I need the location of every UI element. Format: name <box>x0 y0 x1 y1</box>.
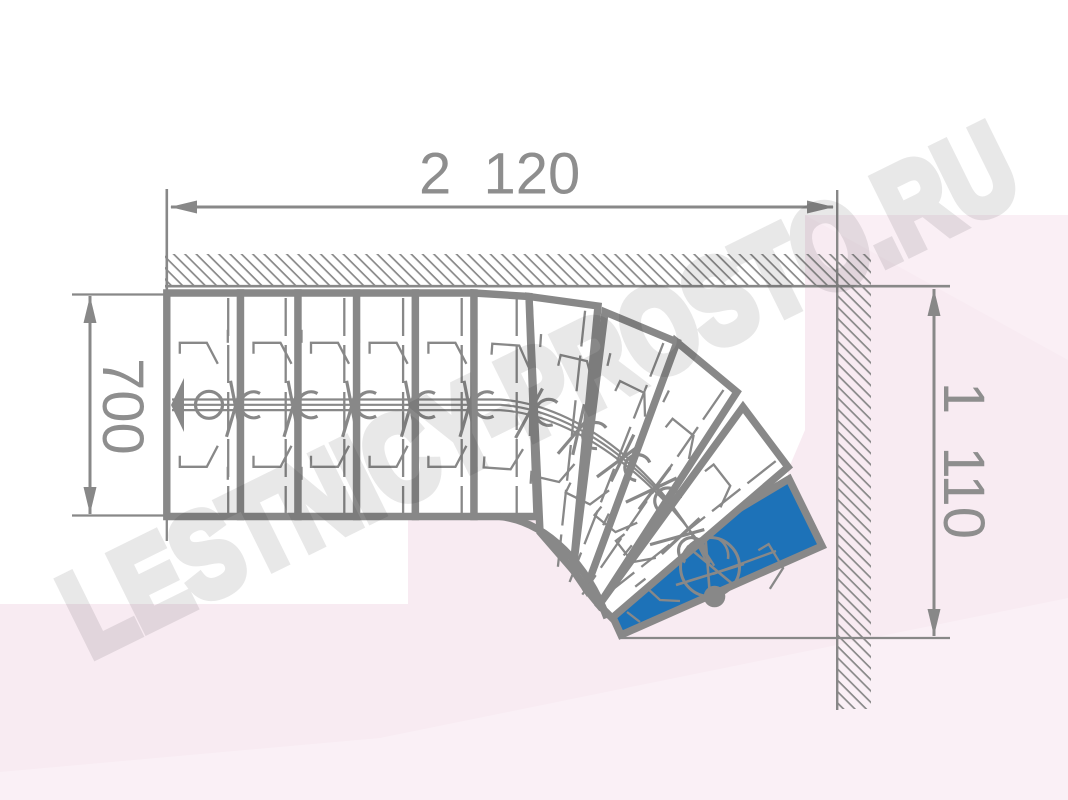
svg-text:1 110: 1 110 <box>931 382 996 539</box>
svg-text:700: 700 <box>90 358 155 455</box>
svg-text:2 120: 2 120 <box>419 142 580 207</box>
